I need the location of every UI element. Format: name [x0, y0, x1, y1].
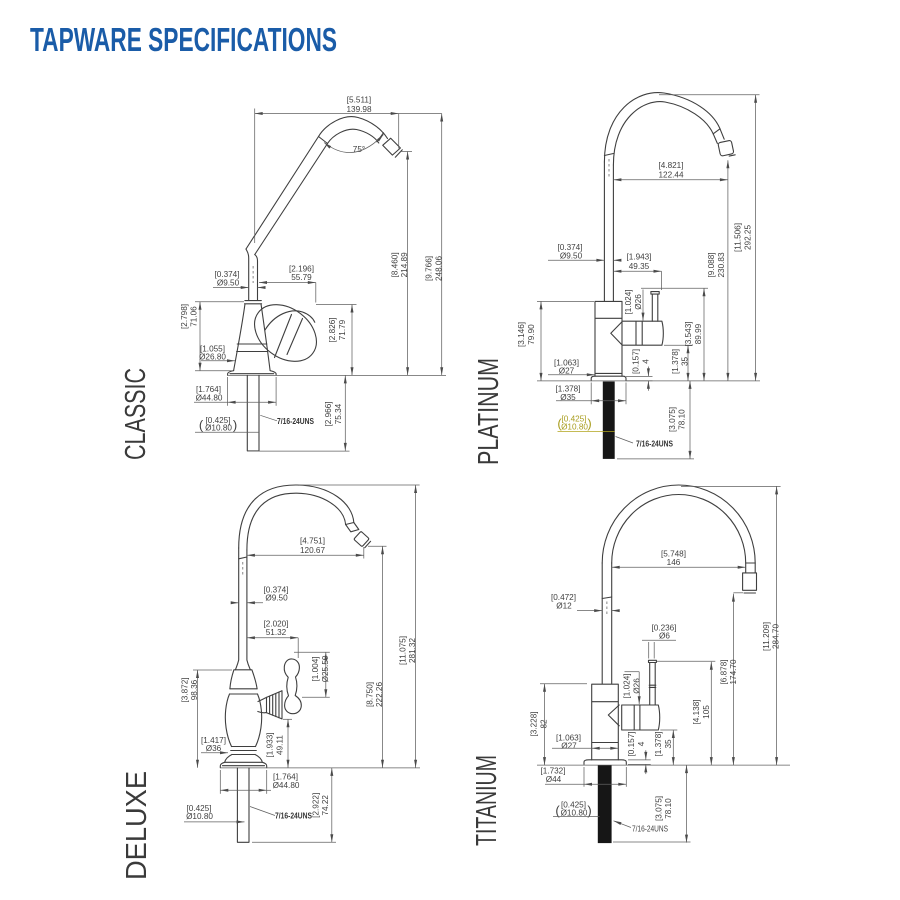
svg-text:): ) [587, 803, 591, 818]
svg-text:Ø9.50: Ø9.50 [265, 594, 288, 603]
svg-text:PLATINUM: PLATINUM [473, 358, 505, 465]
svg-text:75°: 75° [353, 145, 365, 154]
svg-text:[4.821]: [4.821] [658, 161, 683, 170]
svg-text:[1.004]Ø25.50: [1.004]Ø25.50 [311, 655, 330, 682]
svg-text:Ø10.80: Ø10.80 [561, 423, 588, 432]
svg-text:139.98: 139.98 [346, 105, 371, 114]
svg-text:[5.511]: [5.511] [347, 96, 371, 105]
svg-text:122.44: 122.44 [658, 171, 683, 180]
svg-text:Ø10.80: Ø10.80 [205, 424, 232, 433]
svg-text:Ø27: Ø27 [559, 367, 575, 376]
svg-text:7/16-24UNS: 7/16-24UNS [632, 825, 668, 834]
svg-text:7/16-24UNS: 7/16-24UNS [636, 439, 673, 449]
svg-text:): ) [233, 418, 237, 433]
svg-text:Ø10.80: Ø10.80 [186, 812, 213, 821]
svg-text:Ø36: Ø36 [206, 744, 222, 753]
svg-text:[2.966]75.34: [2.966]75.34 [324, 401, 343, 426]
svg-text:Ø44.80: Ø44.80 [273, 781, 300, 790]
svg-text:51.32: 51.32 [266, 628, 287, 637]
svg-text:[2.826]71.79: [2.826]71.79 [328, 317, 347, 342]
svg-text:TITANIUM: TITANIUM [471, 755, 503, 846]
svg-text:[6.878]174.70: [6.878]174.70 [719, 659, 738, 684]
svg-text:[11.209]284.70: [11.209]284.70 [762, 622, 781, 651]
svg-text:[8.750]222.26: [8.750]222.26 [365, 682, 384, 707]
svg-text:[2.798]71.06: [2.798]71.06 [180, 304, 199, 329]
svg-text:Ø12: Ø12 [556, 602, 572, 611]
svg-text:146: 146 [667, 558, 681, 567]
svg-text:[8.460]214.89: [8.460]214.89 [390, 252, 409, 277]
svg-text:Ø6: Ø6 [659, 632, 670, 641]
svg-text:[9.766]248.06: [9.766]248.06 [425, 256, 444, 281]
svg-text:Ø27: Ø27 [561, 742, 577, 751]
svg-text:[1.933]49.11: [1.933]49.11 [266, 732, 285, 757]
svg-text:(: ( [199, 418, 204, 433]
svg-text:[3.146]79.90: [3.146]79.90 [517, 322, 536, 347]
svg-text:[9.088]230.83: [9.088]230.83 [707, 252, 726, 277]
svg-text:): ) [587, 416, 591, 431]
svg-text:7/16-24UNS: 7/16-24UNS [275, 811, 312, 821]
svg-text:[3.543]89.99: [3.543]89.99 [684, 321, 703, 346]
svg-text:[3.075]78.10: [3.075]78.10 [668, 407, 687, 432]
svg-text:49.35: 49.35 [629, 262, 650, 271]
svg-text:Ø44: Ø44 [546, 775, 562, 784]
svg-text:Ø9.50: Ø9.50 [217, 279, 240, 288]
svg-text:TAPWARE SPECIFICATIONS: TAPWARE SPECIFICATIONS [30, 21, 337, 58]
svg-text:7/16-24UNS: 7/16-24UNS [277, 416, 314, 426]
svg-text:CLASSIC: CLASSIC [120, 368, 152, 460]
svg-text:[3.075]78.10: [3.075]78.10 [654, 796, 673, 821]
svg-text:[4.751]: [4.751] [300, 537, 325, 546]
svg-text:Ø44.80: Ø44.80 [196, 394, 223, 403]
svg-text:[3.872]98.36: [3.872]98.36 [180, 677, 199, 702]
svg-text:[2.922]74.22: [2.922]74.22 [311, 793, 330, 818]
svg-text:DELUXE: DELUXE [121, 771, 153, 880]
svg-text:Ø10.80: Ø10.80 [561, 809, 588, 818]
svg-text:[11.075]281.32: [11.075]281.32 [398, 636, 417, 665]
svg-text:Ø26.80: Ø26.80 [199, 352, 226, 361]
svg-text:[1.943]: [1.943] [626, 253, 651, 262]
svg-text:Ø9.50: Ø9.50 [560, 252, 583, 261]
svg-text:120.67: 120.67 [300, 546, 325, 555]
svg-text:[11.506]292.25: [11.506]292.25 [734, 223, 753, 252]
svg-text:55.79: 55.79 [291, 273, 312, 282]
